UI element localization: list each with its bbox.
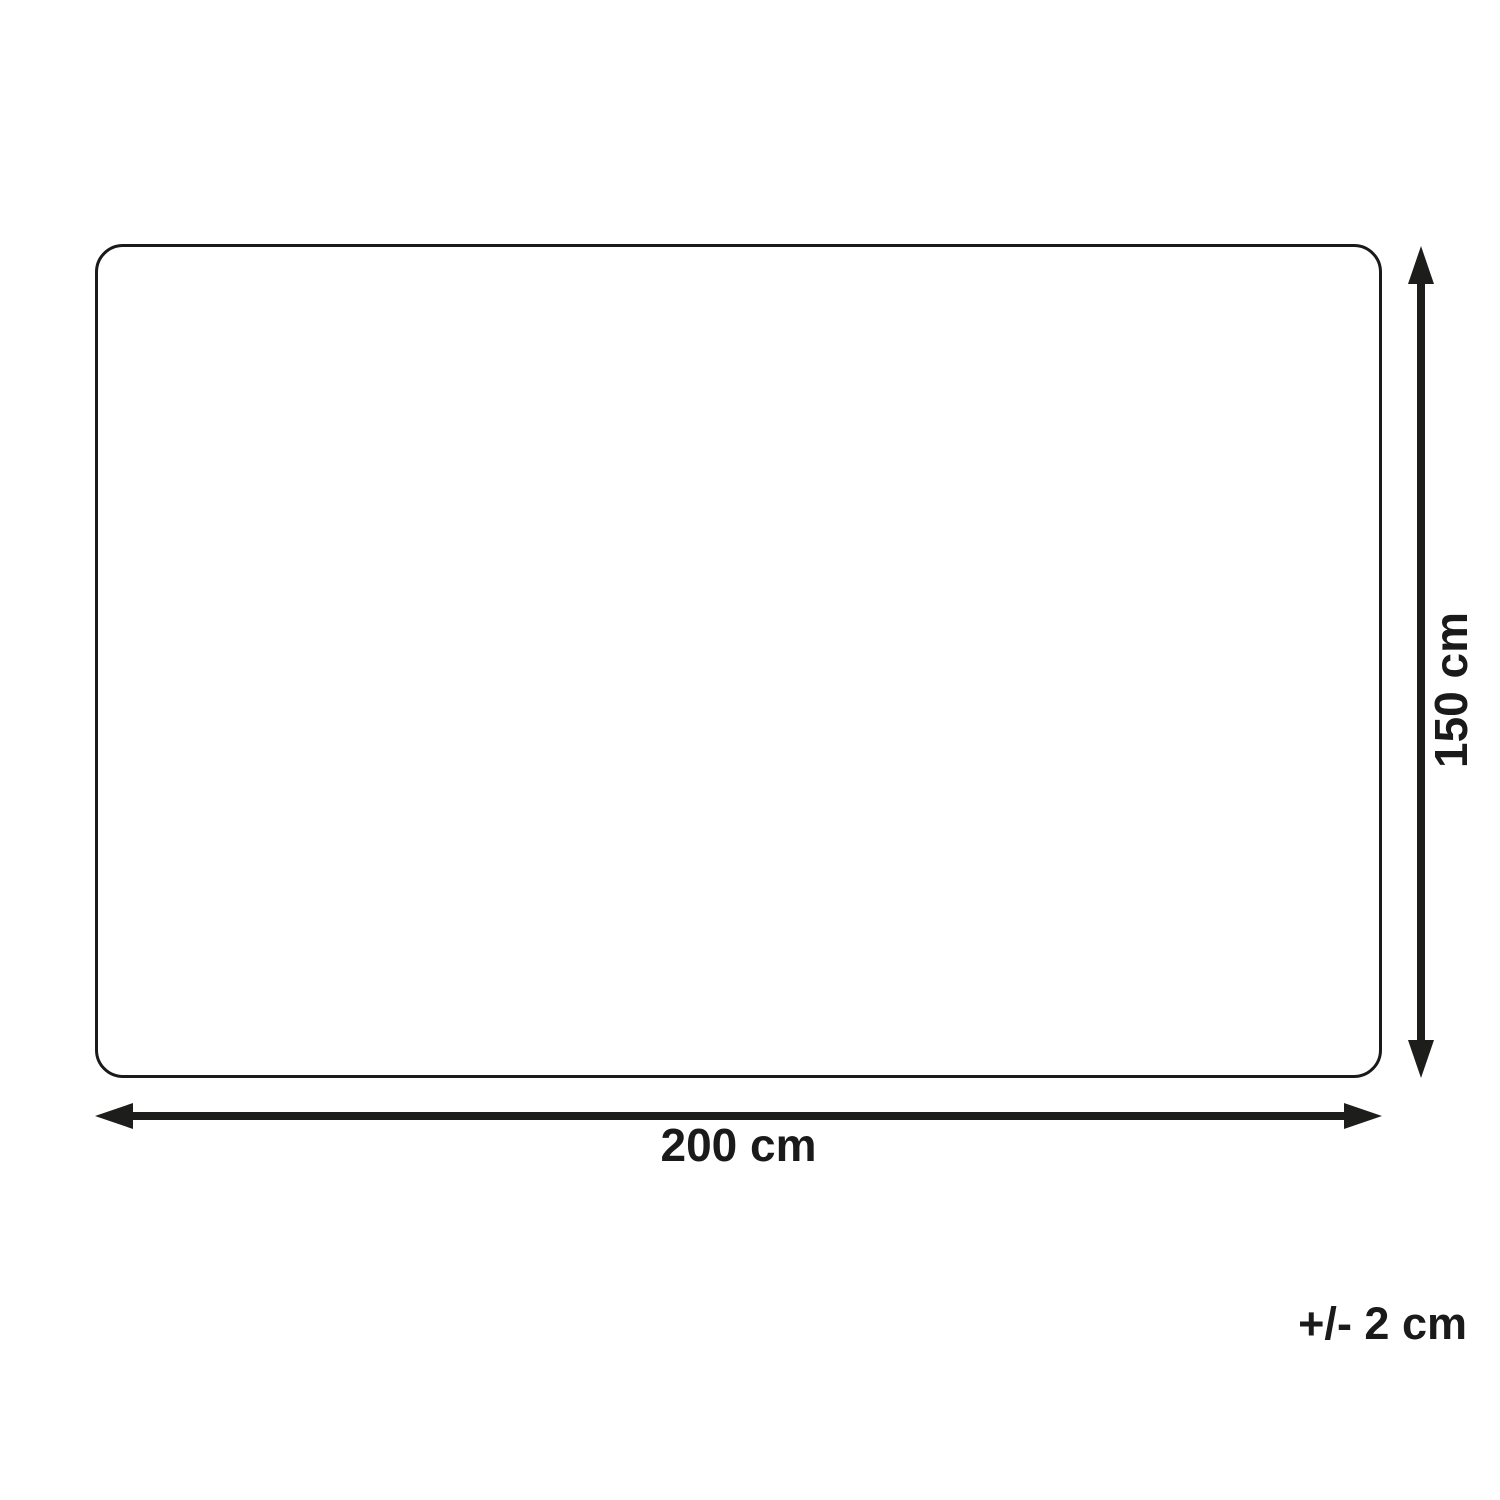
height-dimension-label: 150 cm	[1424, 612, 1478, 768]
product-outline-rectangle	[95, 244, 1382, 1078]
arrowhead-down-icon	[1408, 1040, 1434, 1078]
width-dimension-label: 200 cm	[95, 1118, 1382, 1172]
tolerance-label: +/- 2 cm	[1298, 1298, 1467, 1350]
dimension-diagram: 200 cm 150 cm +/- 2 cm	[0, 0, 1500, 1500]
